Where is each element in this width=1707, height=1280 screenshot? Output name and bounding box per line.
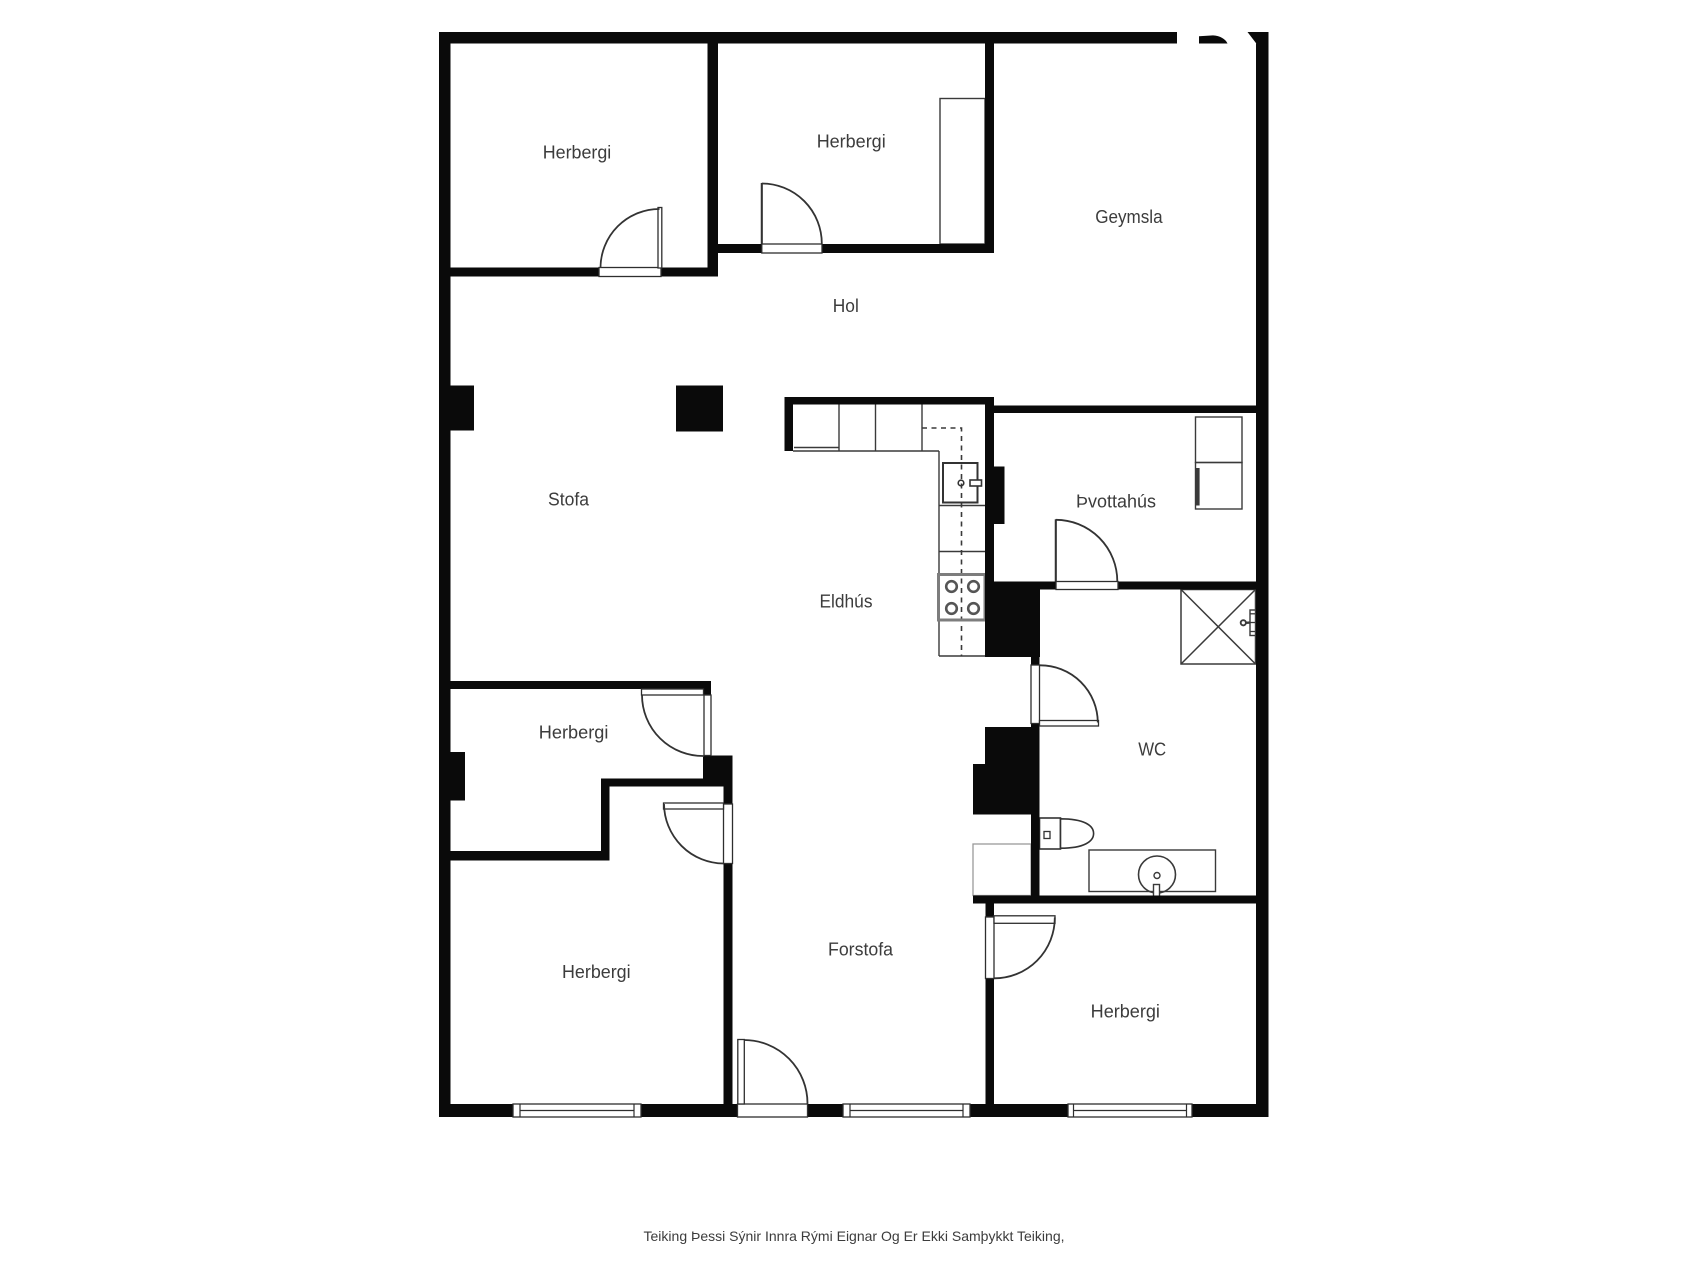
svg-text:WC: WC bbox=[1138, 740, 1166, 760]
svg-text:Stofa: Stofa bbox=[548, 490, 590, 510]
svg-text:Herbergi: Herbergi bbox=[539, 723, 609, 743]
svg-text:Geymsla: Geymsla bbox=[1095, 207, 1163, 227]
svg-text:Þvottahús: Þvottahús bbox=[1076, 492, 1156, 512]
svg-text:Herbergi: Herbergi bbox=[817, 132, 886, 152]
svg-text:Herbergi: Herbergi bbox=[562, 962, 631, 982]
svg-text:Eldhús: Eldhús bbox=[820, 591, 873, 611]
svg-text:Hol: Hol bbox=[833, 296, 859, 316]
svg-text:Teiking Þessi Sýnir Innra Rými: Teiking Þessi Sýnir Innra Rými Eignar Og… bbox=[644, 1228, 1065, 1244]
svg-text:Forstofa: Forstofa bbox=[828, 940, 894, 960]
svg-text:Herbergi: Herbergi bbox=[543, 143, 612, 163]
svg-text:Herbergi: Herbergi bbox=[1091, 1001, 1160, 1021]
